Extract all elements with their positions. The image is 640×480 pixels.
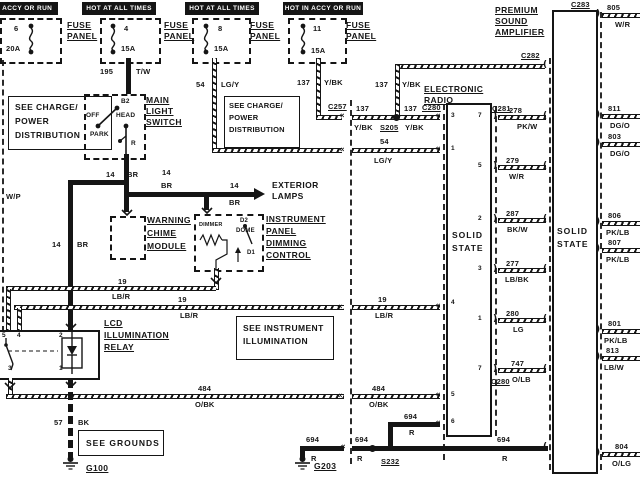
fuse-icon-1 (26, 22, 36, 56)
main-light-switch-line1: MAIN (146, 95, 169, 105)
wire-694-color-b: R (357, 454, 363, 463)
chevron-280-l: ) (493, 314, 497, 324)
radio-pin-left-4: 4 (451, 299, 455, 306)
radio-pin-left-5: 5 (451, 391, 455, 398)
wire-14-left-branch (68, 180, 129, 185)
relay-pin-1: 1 (59, 365, 63, 372)
main-light-switch-line3: SWITCH (146, 117, 182, 127)
chevron-dimmer-exit (210, 277, 222, 284)
fuse-panel-label-2b: PANEL (164, 31, 194, 41)
connector-c280-bottom: C280 (491, 377, 510, 386)
radio-state: STATE (452, 243, 484, 253)
radio-pin-left-3: 3 (451, 112, 455, 119)
wire-137-c282-horizontal (395, 64, 545, 69)
wire-54-color: LG/Y (221, 80, 239, 89)
relay-pin-2: 2 (59, 332, 63, 339)
dimming-line4: CONTROL (266, 250, 311, 260)
wire-277-number: 277 (506, 259, 519, 268)
wire-694-color-a: R (311, 454, 317, 463)
exterior-lamps-arrowhead (254, 188, 265, 200)
wire-805-number: 805 (607, 3, 620, 12)
wire-801 (602, 329, 640, 334)
wire-54-horizontal-b (352, 148, 440, 153)
fuse-3-number: 8 (218, 24, 222, 33)
switch-pos-park: PARK (90, 131, 109, 138)
warning-chime-line2: CHIME (147, 228, 176, 238)
connector-c283: C283 (571, 0, 590, 9)
wire-19-top-drop (6, 289, 11, 331)
wire-484-color-b: O/BK (369, 400, 389, 409)
see-charge-2-line1: SEE CHARGE/ (229, 101, 283, 110)
wire-813-color: LB/W (604, 363, 624, 372)
radio-pin-right-5: 5 (478, 162, 482, 169)
wire-195-number: 195 (100, 67, 113, 76)
see-instrument-line1: SEE INSTRUMENT (243, 323, 324, 333)
wire-19-bottom-drop (17, 308, 22, 331)
wire-803-color: DG/O (610, 149, 630, 158)
connector-c257: C257 (328, 102, 347, 111)
chevron-57bk-top (65, 381, 77, 388)
wire-694-a (300, 446, 344, 451)
bulkhead-connector-line (350, 100, 352, 464)
amp-title-line3: AMPLIFIER (495, 27, 544, 37)
see-charge-2-line2: POWER (229, 113, 258, 122)
wire-806-color: PK/LB (606, 228, 630, 237)
dimmer-dome-label: DOME (236, 228, 255, 234)
connector-mark-19: « (337, 302, 343, 312)
chevron-dimmer-entry (201, 207, 213, 214)
wire-804-number: 804 (615, 442, 628, 451)
exterior-lamps-line2: LAMPS (272, 191, 304, 201)
chevron-747-r: ( (543, 364, 547, 374)
chevron-806: ) (596, 217, 600, 227)
splice-s205 (393, 114, 400, 121)
radio-pin-right-2: 2 (478, 215, 482, 222)
wire-804-color: O/LG (612, 459, 631, 468)
wire-137-number-b: 137 (356, 104, 369, 113)
wire-280-number: 280 (506, 309, 519, 318)
radio-pin-right-1: 1 (478, 315, 482, 322)
wire-19-number-b: 19 (178, 295, 187, 304)
connector-mark-484: « (337, 391, 343, 401)
chevron-807: ) (596, 244, 600, 254)
radio-solid: SOLID (452, 230, 483, 240)
see-grounds-label: SEE GROUNDS (86, 438, 160, 448)
wire-14-number-b: 14 (106, 170, 115, 179)
chevron-747-l: ) (493, 364, 497, 374)
wire-137-number-a: 137 (297, 78, 310, 87)
wire-137-color-c: Y/BK (405, 123, 424, 132)
chevron-813: ) (596, 352, 600, 362)
fuse-icon-4 (298, 22, 308, 56)
header-hot-all-times-1: HOT AT ALL TIMES (82, 2, 156, 15)
wire-807-color: PK/LB (606, 255, 630, 264)
wire-694-number-d: 694 (497, 435, 510, 444)
dimmer-d2-label: D2 (240, 218, 248, 224)
wire-484-b (352, 394, 440, 399)
wire-278-number: 278 (509, 106, 522, 115)
chevron-803: ) (596, 138, 600, 148)
wire-287-number: 287 (506, 209, 519, 218)
wire-19-bottom-b (352, 305, 440, 310)
wire-14-number-a: 14 (162, 168, 171, 177)
connector-mark-694: « (340, 442, 346, 452)
ground-symbol-g203 (294, 456, 311, 470)
chevron-694-amp: ( (543, 442, 547, 452)
chevron-280-r: ( (543, 314, 547, 324)
chevron-radio-left-54: « (435, 144, 441, 154)
wire-19-color-b: LB/R (180, 311, 198, 320)
connector-mark-c257: « (339, 111, 345, 121)
wire-280 (498, 318, 546, 323)
warning-chime-line3: MODULE (147, 241, 186, 251)
wire-54-vertical (212, 58, 217, 150)
fuse-icon-3 (201, 22, 211, 56)
fuse-4-number: 11 (313, 24, 321, 33)
switch-terminal-b2: B2 (121, 98, 130, 105)
wire-484-number-a: 484 (198, 384, 211, 393)
wire-137-number-c: 137 (404, 104, 417, 113)
warning-chime-line1: WARNING (147, 215, 191, 225)
chevron-chime-entry (121, 209, 133, 216)
wire-805-color: W/R (615, 20, 630, 29)
wire-279 (498, 165, 546, 170)
wire-137-number-d: 137 (375, 80, 388, 89)
wire-14-color-b: BR (127, 170, 138, 179)
wire-811-color: DG/O (610, 121, 630, 130)
fuse-3-rating: 15A (214, 44, 228, 53)
dimmer-label: DIMMER (199, 222, 223, 228)
ground-g203-label: G203 (314, 461, 336, 471)
radio-connector-line-c280 (443, 104, 445, 460)
wire-54-color-b: LG/Y (374, 156, 392, 165)
lcd-relay-line1: LCD (104, 318, 123, 328)
fuse-2-rating: 15A (121, 44, 135, 53)
wire-277-color: LB/BK (505, 275, 529, 284)
radio-box (446, 103, 492, 437)
radio-pin-right-7: 7 (478, 112, 482, 119)
relay-pin-3: 3 (8, 365, 12, 372)
wire-287 (498, 218, 546, 223)
chevron-277-l: ) (493, 264, 497, 274)
radio-pin-right-7b: 7 (478, 365, 482, 372)
wire-694-number-b: 694 (355, 435, 368, 444)
header-hot-in-accy-2: HOT IN ACCY OR RUN (283, 2, 363, 15)
chevron-radio-left-484: « (435, 390, 441, 400)
dimmer-d1-label: D1 (247, 250, 255, 256)
wire-57-color: BK (78, 418, 89, 427)
radio-pin-left-1: 1 (451, 145, 455, 152)
wire-484-number-b: 484 (372, 384, 385, 393)
wp-wire-color: W/P (6, 192, 21, 201)
relay-pin-5: 5 (2, 332, 6, 339)
amp-title-line1: PREMIUM (495, 5, 538, 15)
wire-811-number: 811 (608, 104, 621, 113)
wire-801-color: PK/LB (604, 336, 628, 345)
chevron-radio-left-137: « (435, 111, 441, 121)
lcd-relay-line2: ILLUMINATION (104, 330, 169, 340)
see-charge-2-line3: DISTRIBUTION (229, 125, 285, 134)
switch-terminal-r: R (131, 140, 136, 147)
wire-14-color-d: BR (77, 240, 88, 249)
fuse-4-rating: 15A (311, 46, 325, 55)
wire-279-color: W/R (509, 172, 524, 181)
wire-19-color-a: LB/R (112, 292, 130, 301)
wire-805 (602, 13, 640, 18)
wire-195 (126, 58, 131, 94)
amp-connector-line-c282 (549, 58, 551, 470)
amp-title-line2: SOUND (495, 16, 528, 26)
chevron-relay3-exit (4, 382, 16, 389)
splice-s205-label: S205 (380, 123, 398, 132)
see-charge-1-line2: POWER (15, 116, 49, 126)
wire-54-horizontal-a (212, 148, 342, 153)
see-charge-1-line1: SEE CHARGE/ (15, 102, 78, 112)
fuse-1-number: 6 (14, 24, 18, 33)
lcd-relay-internals (0, 330, 96, 376)
wire-287-color: BK/W (507, 225, 528, 234)
chevron-801: ) (596, 325, 600, 335)
connector-c282: C282 (521, 51, 540, 60)
dimming-line1: INSTRUMENT (266, 214, 326, 224)
wire-694-color-c: R (409, 428, 415, 437)
wire-807 (602, 248, 640, 253)
wire-19-bottom-a (14, 305, 344, 310)
wire-484-color-a: O/BK (195, 400, 215, 409)
wire-694-b (352, 446, 548, 451)
wire-694-number-c: 694 (404, 412, 417, 421)
wire-14-right-branch (124, 192, 254, 197)
connector-mark-54: « (339, 145, 345, 155)
wire-804 (602, 452, 640, 457)
fuse-panel-label-1b: PANEL (67, 31, 97, 41)
chevron-277-r: ( (543, 264, 547, 274)
ground-symbol-g100 (62, 456, 79, 470)
wire-278 (498, 115, 546, 120)
wire-813-number: 813 (606, 346, 619, 355)
wire-19-top (6, 286, 216, 291)
wp-wire-dashed (2, 60, 4, 332)
fuse-panel-label-4a: FUSE (346, 20, 370, 30)
chevron-278-l: ) (493, 111, 497, 121)
wire-807-number: 807 (608, 238, 621, 247)
relay-pin-4: 4 (17, 332, 21, 339)
wire-694-color-d: R (502, 454, 508, 463)
splice-s232-label: S232 (381, 457, 399, 466)
fuse-panel-label-3b: PANEL (250, 31, 280, 41)
wire-747 (498, 368, 546, 373)
fuse-panel-label-4b: PANEL (346, 31, 376, 41)
wire-14-color-a: BR (161, 181, 172, 190)
chevron-278-r: ( (543, 111, 547, 121)
wire-54-number: 54 (196, 80, 205, 89)
switch-pos-head: HEAD (116, 112, 135, 119)
wire-747-number: 747 (511, 359, 524, 368)
header-hot-all-times-2: HOT AT ALL TIMES (185, 2, 259, 15)
wire-137-color-a: Y/BK (324, 78, 343, 87)
wiring-diagram: HOT IN ACCY OR RUN HOT AT ALL TIMES HOT … (0, 0, 640, 480)
wire-19-color-c: LB/R (375, 311, 393, 320)
fuse-icon-2 (108, 22, 118, 56)
wire-195-color: T/W (136, 67, 150, 76)
header-hot-in-accy-1: HOT IN ACCY OR RUN (0, 2, 58, 15)
dimming-line3: DIMMING (266, 238, 307, 248)
wire-137-c282-vertical (395, 64, 400, 118)
ground-g100-label: G100 (86, 463, 108, 473)
fuse-panel-label-1a: FUSE (67, 20, 91, 30)
amp-connector-line-c283 (600, 12, 602, 470)
warning-chime-box (110, 216, 146, 260)
wire-137-color-d: Y/BK (402, 80, 421, 89)
wire-19-number-a: 19 (118, 277, 127, 286)
exterior-lamps-line1: EXTERIOR (272, 180, 319, 190)
see-instrument-line2: ILLUMINATION (243, 336, 308, 346)
chevron-811: ) (596, 110, 600, 120)
switch-pos-off: OFF (86, 112, 100, 119)
radio-pin-right-3: 3 (478, 265, 482, 272)
wire-811 (602, 114, 640, 119)
chevron-287-l: ) (493, 214, 497, 224)
wire-57-number: 57 (54, 418, 63, 427)
splice-s232 (369, 445, 376, 452)
wire-694-number-a: 694 (306, 435, 319, 444)
fuse-panel-label-3a: FUSE (250, 20, 274, 30)
wire-803 (602, 142, 640, 147)
wire-277 (498, 268, 546, 273)
fuse-panel-label-2a: FUSE (164, 20, 188, 30)
wire-14-color-c: BR (229, 198, 240, 207)
wire-484-a (6, 394, 344, 399)
fuse-1-rating: 20A (6, 44, 20, 53)
chevron-287-r: ( (543, 214, 547, 224)
wire-54-number-b: 54 (380, 137, 389, 146)
wire-279-number: 279 (506, 156, 519, 165)
chevron-804: ) (596, 448, 600, 458)
wire-137-vertical-fuse (316, 58, 321, 118)
wire-14-number-d: 14 (52, 240, 61, 249)
wire-280-color: LG (513, 325, 524, 334)
wire-19-number-c: 19 (378, 295, 387, 304)
chevron-805: ) (596, 9, 600, 19)
amp-solid: SOLID (557, 226, 588, 236)
lcd-relay-line3: RELAY (104, 342, 134, 352)
wire-747-color: O/LB (512, 375, 531, 384)
chevron-radio-left-694: « (435, 418, 441, 428)
amp-state: STATE (557, 239, 589, 249)
main-light-switch-line2: LIGHT (146, 106, 174, 116)
see-charge-1-line3: DISTRIBUTION (15, 130, 80, 140)
wire-137-color-b: Y/BK (354, 123, 373, 132)
chevron-279-l: ) (493, 161, 497, 171)
chevron-radio-left-19: « (435, 301, 441, 311)
wire-278-color: PK/W (517, 122, 537, 131)
fuse-2-number: 4 (124, 24, 128, 33)
radio-pin-left-6: 6 (451, 418, 455, 425)
chevron-c282: ( (543, 60, 547, 70)
wire-813 (602, 356, 640, 361)
wire-806-number: 806 (608, 211, 621, 220)
chevron-279-r: ( (543, 161, 547, 171)
chevron-relay2-entry (65, 323, 77, 330)
wire-801-number: 801 (608, 319, 621, 328)
wire-694-branch-horizontal (388, 422, 440, 427)
radio-title-line1: ELECTRONIC (424, 84, 483, 94)
wire-803-number: 803 (608, 132, 621, 141)
wire-806 (602, 221, 640, 226)
wire-57 (68, 380, 73, 458)
wire-14-number-c: 14 (230, 181, 239, 190)
dimming-line2: PANEL (266, 226, 296, 236)
